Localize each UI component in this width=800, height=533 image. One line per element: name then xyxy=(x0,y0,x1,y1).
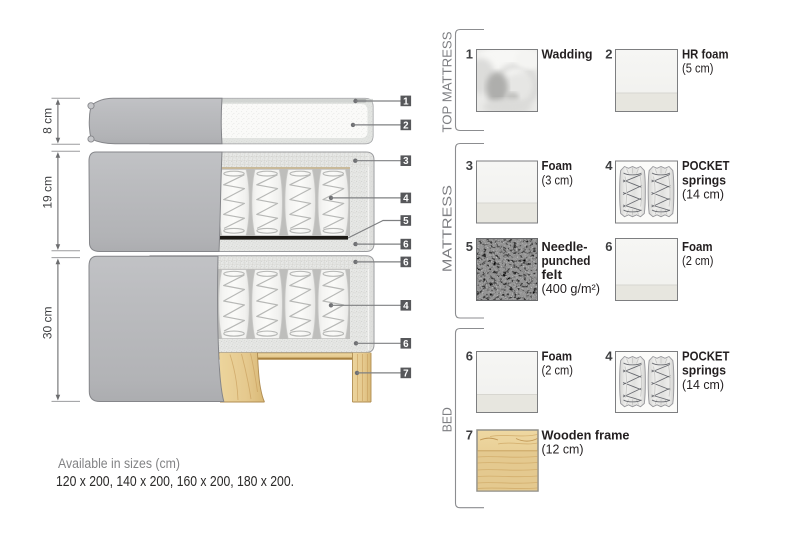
svg-text:4: 4 xyxy=(403,301,409,312)
svg-text:springs: springs xyxy=(682,363,726,378)
svg-text:4: 4 xyxy=(403,193,409,204)
svg-text:7: 7 xyxy=(403,368,409,379)
svg-text:19 cm: 19 cm xyxy=(40,176,54,209)
svg-text:(2 cm): (2 cm) xyxy=(682,253,714,268)
svg-text:3: 3 xyxy=(466,158,473,173)
svg-text:4: 4 xyxy=(605,349,613,364)
svg-text:springs: springs xyxy=(682,172,726,187)
svg-text:MATTRESS: MATTRESS xyxy=(440,185,455,272)
svg-text:Foam: Foam xyxy=(542,158,573,173)
svg-text:1: 1 xyxy=(466,47,473,62)
svg-text:(400 g/m²): (400 g/m²) xyxy=(542,281,601,296)
svg-text:(14 cm): (14 cm) xyxy=(682,377,724,392)
svg-text:7: 7 xyxy=(466,427,473,442)
svg-text:Wooden frame: Wooden frame xyxy=(542,427,630,442)
svg-text:Available in sizes (cm): Available in sizes (cm) xyxy=(58,456,180,471)
svg-text:6: 6 xyxy=(403,240,409,251)
svg-text:POCKET: POCKET xyxy=(682,349,730,364)
svg-text:2: 2 xyxy=(605,47,612,62)
svg-text:TOP MATTRESS: TOP MATTRESS xyxy=(440,31,455,132)
svg-text:4: 4 xyxy=(605,158,613,173)
svg-text:8 cm: 8 cm xyxy=(40,108,54,134)
svg-text:6: 6 xyxy=(403,339,409,350)
svg-text:6: 6 xyxy=(466,349,473,364)
svg-text:felt: felt xyxy=(542,267,563,282)
svg-text:5: 5 xyxy=(403,216,409,227)
svg-text:(14 cm): (14 cm) xyxy=(682,187,724,202)
svg-text:Wadding: Wadding xyxy=(542,47,593,62)
svg-text:5: 5 xyxy=(466,239,473,254)
svg-text:Foam: Foam xyxy=(542,349,573,364)
svg-text:1: 1 xyxy=(403,96,409,107)
svg-text:(2 cm): (2 cm) xyxy=(542,363,574,378)
svg-text:3: 3 xyxy=(403,156,409,167)
svg-text:6: 6 xyxy=(605,239,612,254)
svg-text:POCKET: POCKET xyxy=(682,158,730,173)
svg-text:Needle-: Needle- xyxy=(542,239,588,254)
svg-text:30 cm: 30 cm xyxy=(40,306,54,339)
svg-text:(5 cm): (5 cm) xyxy=(682,61,714,76)
svg-text:2: 2 xyxy=(403,120,409,131)
svg-text:HR foam: HR foam xyxy=(682,47,729,62)
svg-text:punched: punched xyxy=(542,253,591,268)
svg-text:120 x 200, 140 x 200, 160 x 20: 120 x 200, 140 x 200, 160 x 200, 180 x 2… xyxy=(56,473,294,490)
svg-text:Foam: Foam xyxy=(682,239,713,254)
svg-text:(12 cm): (12 cm) xyxy=(542,441,584,456)
svg-text:6: 6 xyxy=(403,257,409,268)
svg-text:BED: BED xyxy=(440,407,455,432)
svg-text:(3 cm): (3 cm) xyxy=(542,172,574,187)
